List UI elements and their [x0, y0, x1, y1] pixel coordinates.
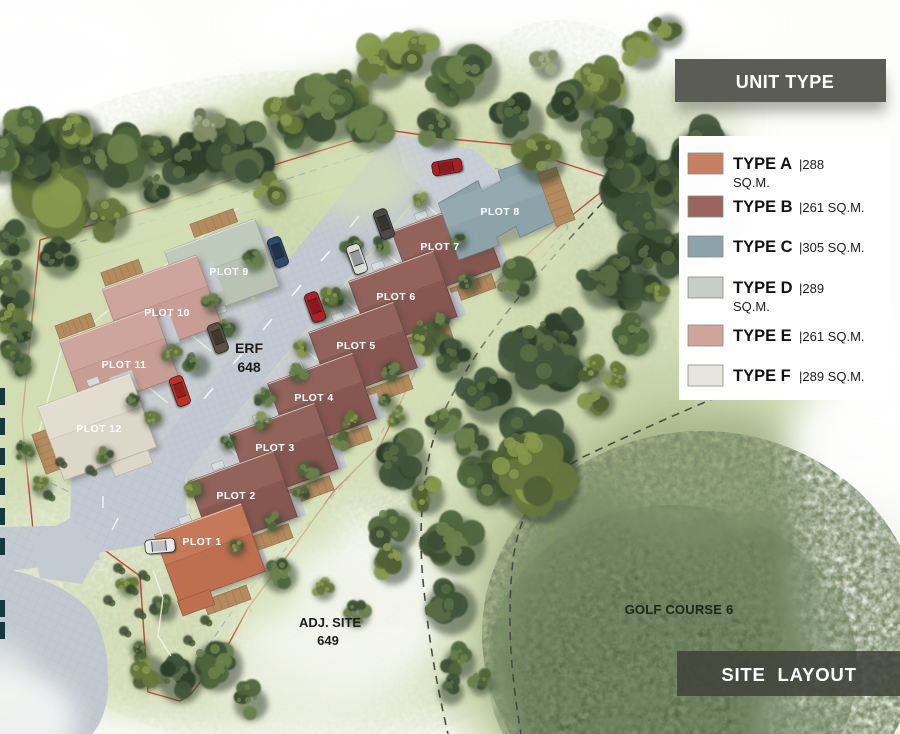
svg-text:TYPE E: TYPE E	[733, 327, 792, 345]
svg-text:|289 SQ.M.: |289 SQ.M.	[799, 369, 865, 384]
svg-text:PLOT 12: PLOT 12	[76, 423, 121, 435]
svg-text:649: 649	[317, 633, 339, 648]
svg-text:TYPE C: TYPE C	[733, 238, 793, 256]
svg-text:|288: |288	[799, 157, 824, 172]
svg-text:|305 SQ.M.: |305 SQ.M.	[799, 240, 865, 255]
svg-text:ERF: ERF	[235, 340, 263, 356]
svg-text:|261 SQ.M.: |261 SQ.M.	[799, 200, 865, 215]
svg-text:PLOT 11: PLOT 11	[102, 359, 147, 371]
svg-text:TYPE D: TYPE D	[733, 279, 793, 297]
svg-text:|261 SQ.M.: |261 SQ.M.	[799, 329, 865, 344]
svg-text:PLOT 3: PLOT 3	[255, 442, 294, 454]
svg-text:PLOT 1: PLOT 1	[182, 536, 221, 548]
svg-text:SQ.M.: SQ.M.	[733, 299, 770, 314]
svg-text:PLOT 8: PLOT 8	[480, 206, 519, 218]
svg-text:SITE LAYOUT: SITE LAYOUT	[721, 664, 856, 685]
svg-text:|289: |289	[799, 281, 824, 296]
svg-text:PLOT 6: PLOT 6	[376, 291, 415, 303]
svg-text:GOLF COURSE 6: GOLF COURSE 6	[625, 602, 734, 617]
svg-text:TYPE F: TYPE F	[733, 367, 791, 385]
svg-text:TYPE A: TYPE A	[733, 155, 792, 173]
svg-text:PLOT 2: PLOT 2	[216, 490, 255, 502]
svg-text:PLOT 5: PLOT 5	[336, 340, 375, 352]
svg-text:PLOT 7: PLOT 7	[420, 241, 459, 253]
svg-text:PLOT 9: PLOT 9	[209, 266, 248, 278]
svg-text:SQ.M.: SQ.M.	[733, 175, 770, 190]
svg-text:PLOT 10: PLOT 10	[144, 307, 189, 319]
svg-text:PLOT 4: PLOT 4	[294, 392, 333, 404]
svg-text:UNIT TYPE: UNIT TYPE	[736, 72, 835, 92]
svg-text:ADJ. SITE: ADJ. SITE	[299, 615, 361, 630]
svg-text:648: 648	[237, 359, 261, 375]
svg-text:TYPE B: TYPE B	[733, 198, 793, 216]
